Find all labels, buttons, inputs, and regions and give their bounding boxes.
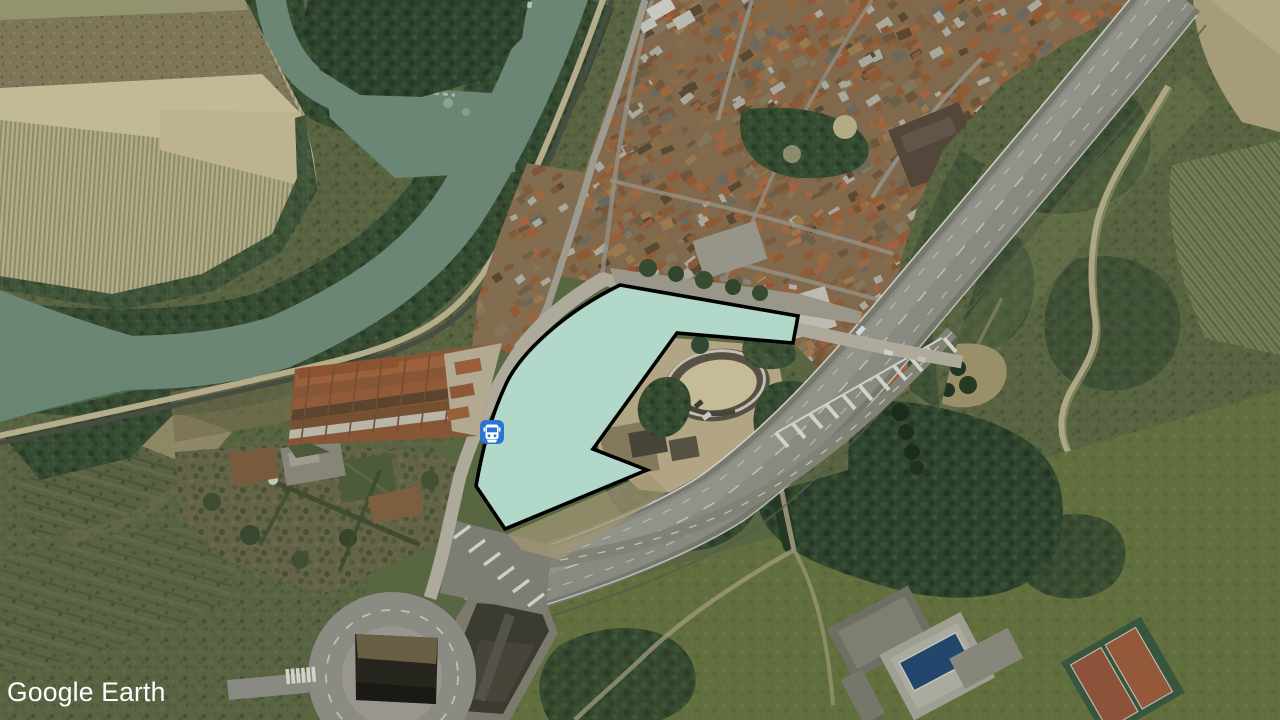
svg-text:Google Earth: Google Earth [7, 677, 166, 707]
